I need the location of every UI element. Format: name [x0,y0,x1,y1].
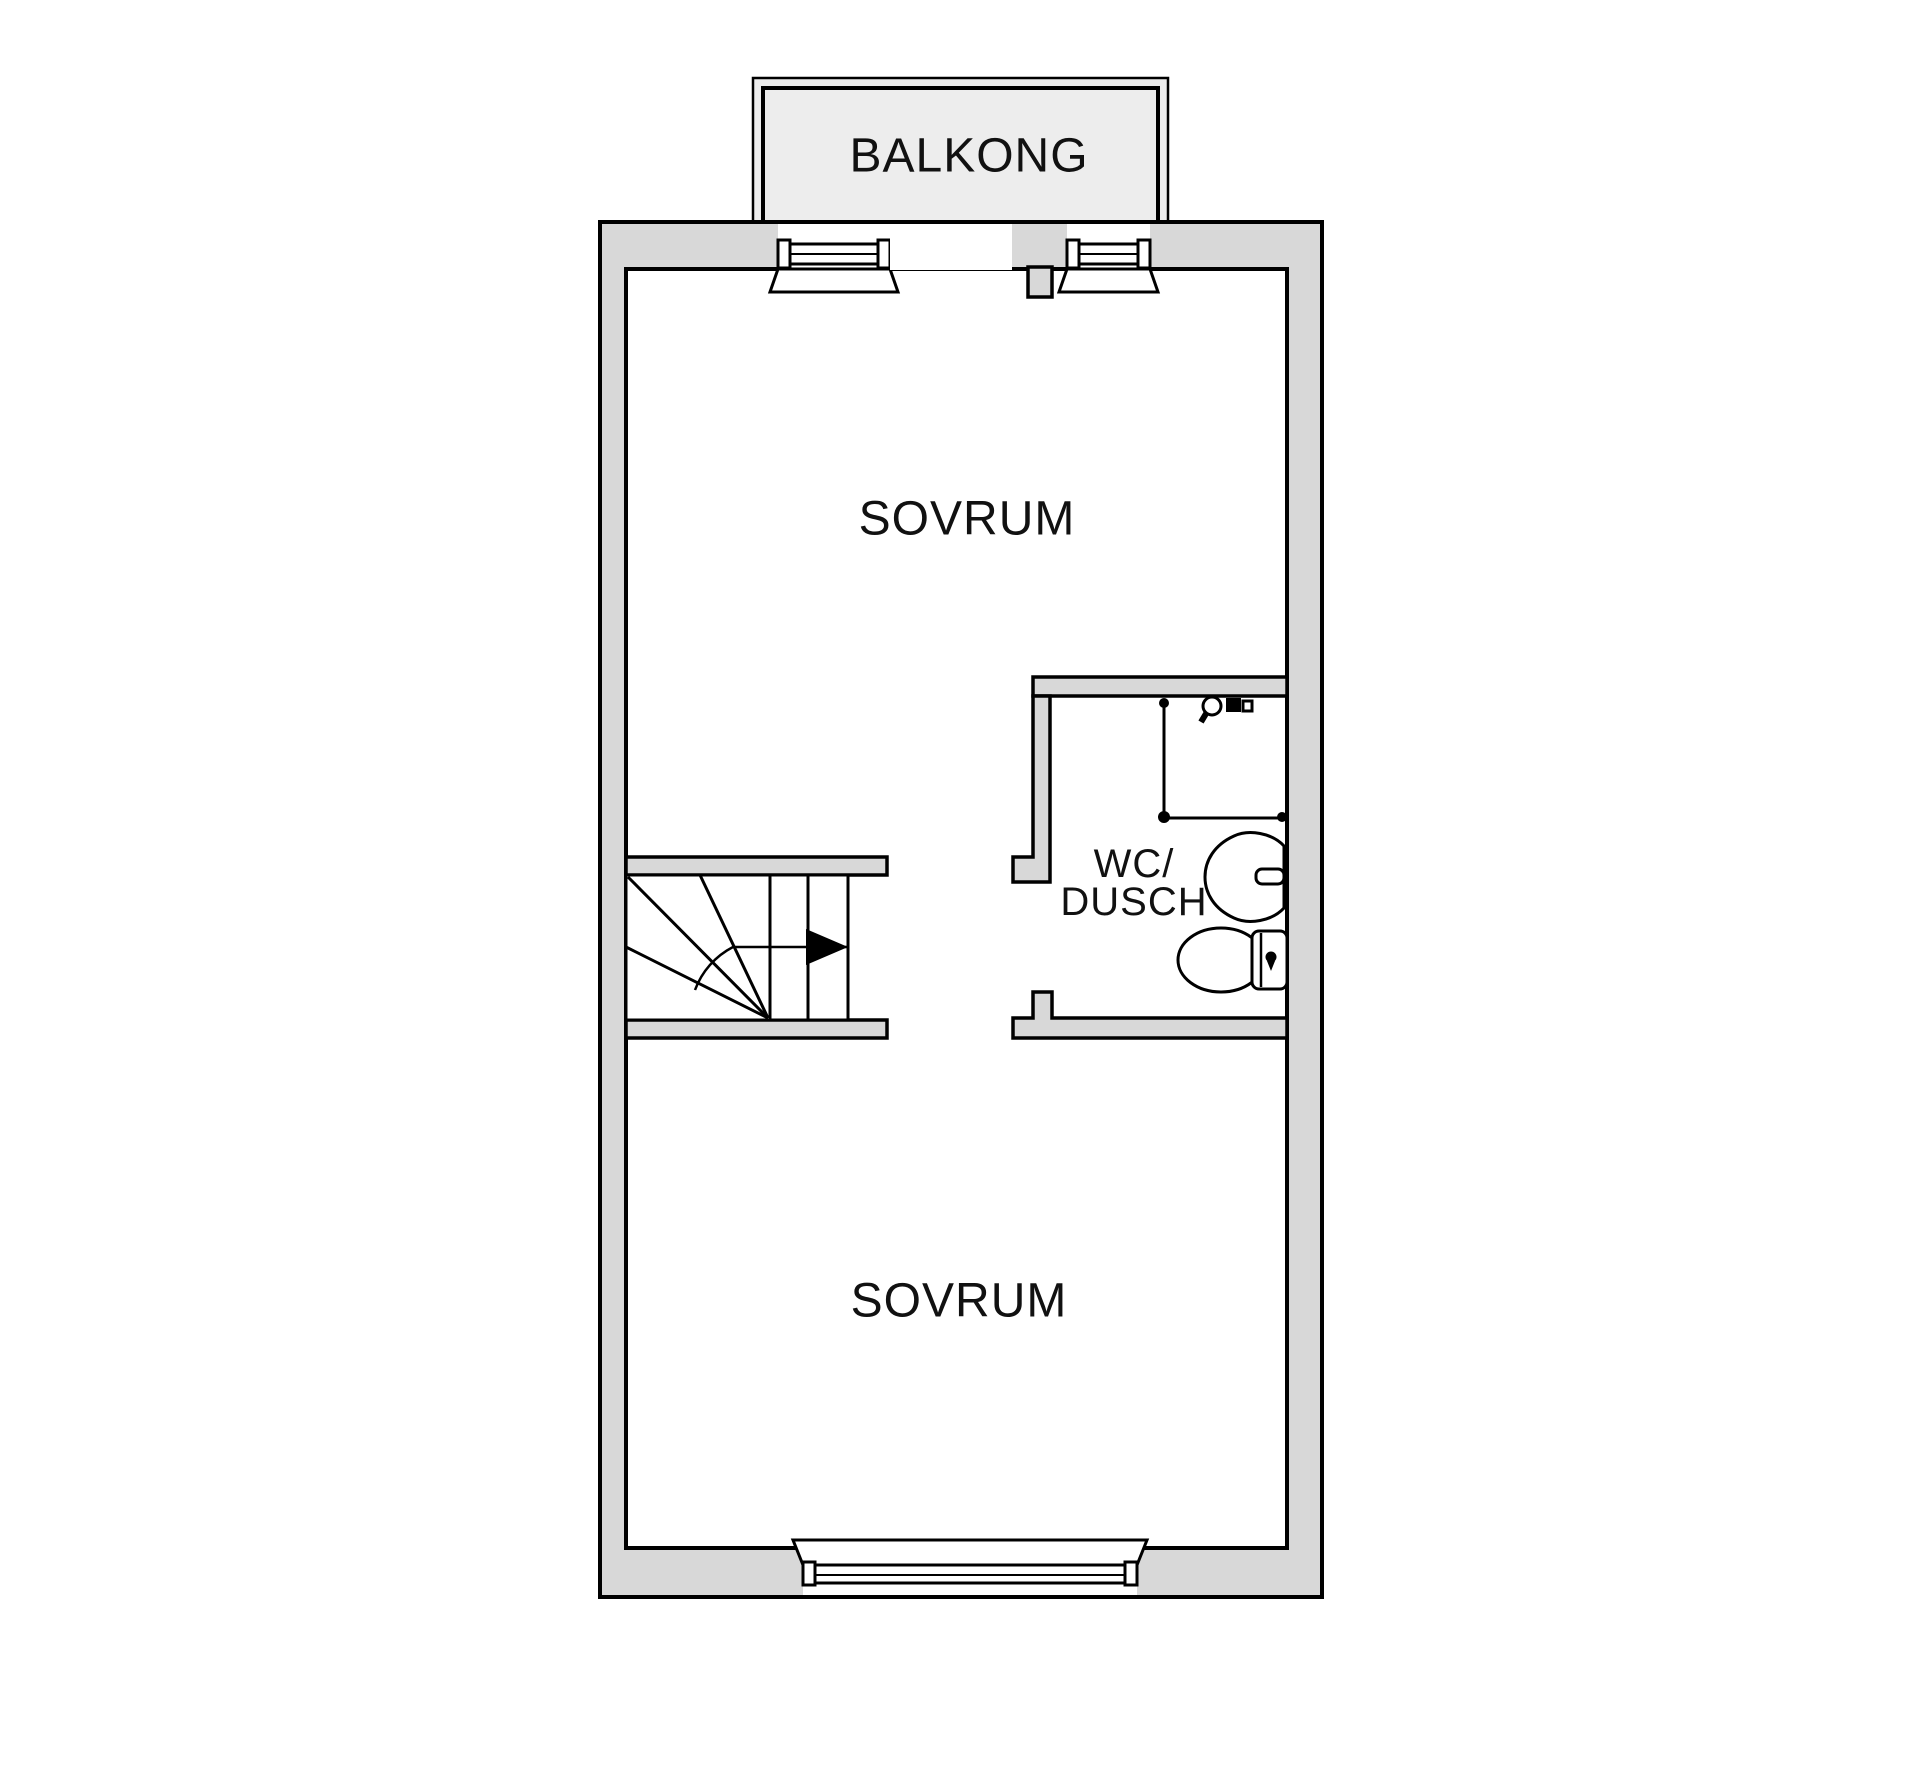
washbasin-icon [1205,833,1284,922]
floor-plan-page: BALKONG SOVRUM WC/ DUSCH SOVRUM [0,0,1920,1787]
shower-screen-post [1277,812,1287,822]
window-jamb [1138,240,1150,268]
bedroom-lower-label: SOVRUM [851,1276,1068,1329]
staircase-icon [626,875,848,1020]
window-jamb [878,240,890,268]
wall-stub [1028,267,1052,297]
mixer-valve [1203,697,1221,715]
balcony-label: BALKONG [849,131,1088,184]
mixer-body [1226,698,1241,712]
shower-screen-post [1158,811,1170,823]
window-jamb [1067,240,1079,268]
bedroom-upper-label: SOVRUM [859,494,1076,547]
window-jamb [803,1562,815,1585]
toilet-flush [1266,952,1277,963]
bathroom-bottom-wall [1013,992,1287,1038]
window-jamb [778,240,790,268]
window-jamb [1125,1562,1137,1585]
stair-lower-wall [626,1020,887,1038]
window-top-left [770,224,898,292]
bathroom-top-wall [1033,677,1287,696]
stair-upper-wall [626,857,887,875]
mixer-outlet [1243,701,1252,711]
shower-screen-post [1159,698,1169,708]
window-sill [793,1540,1147,1565]
floor-plan-drawing [0,0,1920,1787]
bathroom-label-line2: DUSCH [1060,883,1207,921]
window-sill [770,269,898,292]
window-top-right [1059,224,1158,292]
toilet-icon [1178,928,1287,992]
shower-enclosure-icon [1158,698,1287,823]
basin-tap [1256,869,1284,884]
shower-mixer-icon [1201,697,1252,722]
bathroom-left-wall [1013,696,1050,882]
bathroom-label-line1: WC/ [1060,845,1207,883]
window-sill [1059,269,1158,292]
balcony-door-opening [890,224,1012,270]
bathroom-label: WC/ DUSCH [1060,845,1207,921]
